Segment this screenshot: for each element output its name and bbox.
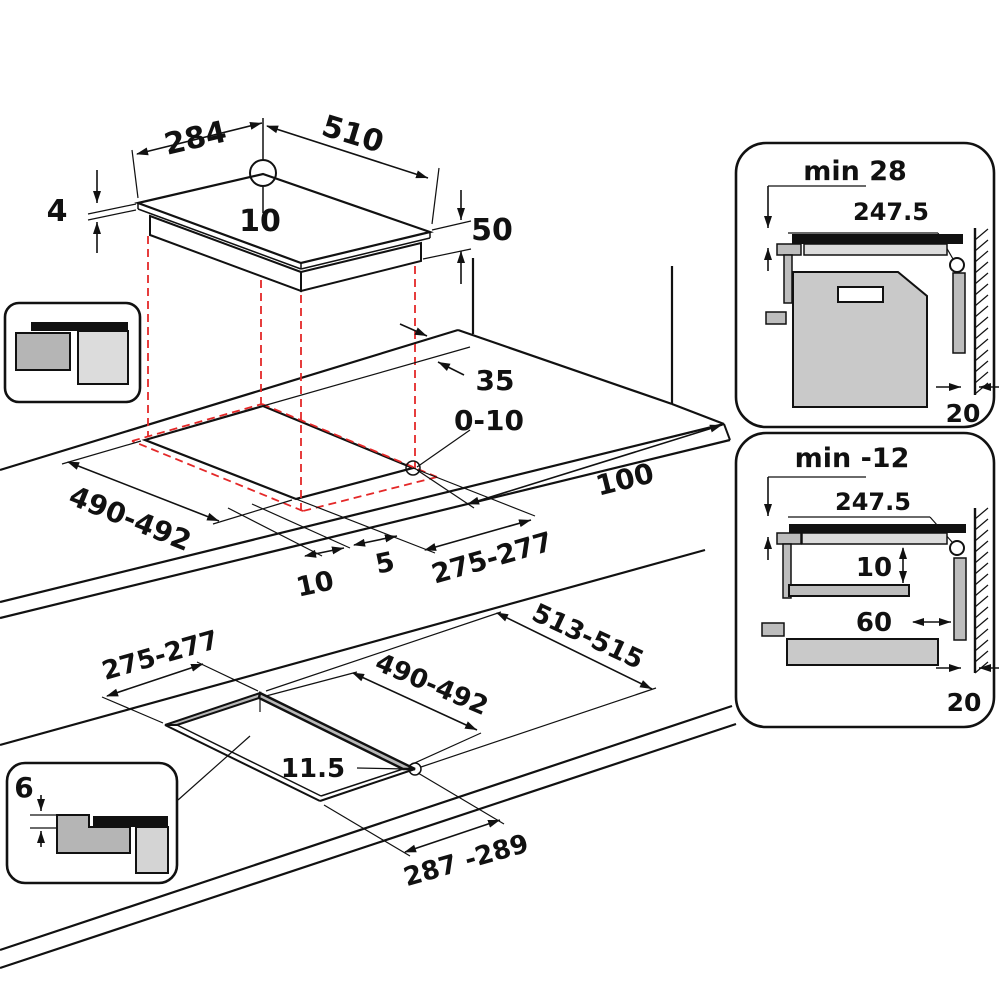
dim-35-arrow-2 (438, 362, 464, 375)
dim-label-glass-thickness: 4 (47, 194, 68, 229)
dim-label-glass-gap: 5 (373, 546, 398, 580)
ext-4-top (88, 204, 136, 214)
ext-287-right (418, 773, 504, 824)
dim-label-side-clearance: 100 (593, 456, 658, 502)
label-wall-gap-oven: 20 (946, 399, 981, 428)
surface-icon-hob-body (16, 333, 70, 370)
label-shelf-gap: 10 (856, 553, 892, 583)
shelf-wall-hatch (975, 508, 988, 673)
surface-icon-glass (31, 322, 128, 331)
ext-490L-right (408, 733, 481, 766)
shelf-bracket (777, 533, 801, 544)
label-shelf-setback: 60 (856, 608, 892, 638)
shelf-hob-body (802, 533, 947, 544)
ext-4-bottom (88, 210, 136, 220)
shelf-wall-spacer (954, 558, 966, 640)
flush-icon-counter-body (136, 827, 168, 873)
oven-hob-glass (792, 234, 963, 244)
label-wall-gap-shelf: 20 (947, 688, 982, 717)
oven-side-tab (766, 312, 786, 324)
oven-wall-spacer (953, 273, 965, 353)
shelf-clearance-panel: min -12 247.5 10 60 20 (736, 433, 999, 727)
shelf-board (789, 585, 909, 596)
dim-35-arrow-1 (400, 324, 427, 336)
oven-vent-slot (838, 287, 883, 302)
oven-bracket-strip (784, 255, 792, 303)
dim-label-cutout-depth: 490-492 (64, 479, 196, 558)
surface-cutout-outline (145, 406, 413, 499)
dim-10-arrow (305, 548, 344, 556)
label-min-clearance-oven: min 28 (803, 156, 907, 187)
flush-mount-icon: 6 (7, 736, 250, 883)
shelf-center-marker (950, 541, 964, 555)
oven-clearance-panel: min 28 247.5 20 (736, 143, 999, 428)
projection-lines (132, 236, 437, 511)
dim-label-edge-offset: 10 (294, 565, 337, 603)
ext-edge-3 (296, 499, 435, 553)
counter-end-cap (724, 424, 730, 440)
flush-icon-counter-top (93, 816, 168, 827)
oven-hob-body (804, 244, 947, 255)
hob-body-right-face (301, 243, 421, 291)
label-min-clearance-shelf: min -12 (795, 443, 910, 474)
dim-label-back-gap: 35 (476, 364, 515, 397)
counter-end-edge (672, 404, 724, 424)
hob-dimensions: 284 510 4 10 50 (47, 109, 513, 284)
flush-counter (0, 550, 736, 968)
surface-counter (0, 258, 730, 618)
ext-284-left (132, 150, 138, 198)
shelf-drawer (787, 639, 938, 665)
flush-rim-left (165, 693, 260, 725)
label-center-distance-shelf: 247.5 (835, 488, 911, 516)
ext-edge-1 (228, 508, 322, 556)
ext-510-right (432, 168, 439, 224)
oven-bracket (777, 244, 801, 255)
shelf-side-tab (762, 623, 784, 636)
ext-490-left (62, 441, 141, 464)
dim-label-cutout-width: 275-277 (428, 527, 556, 591)
ext-50-top (432, 221, 471, 230)
dim-label-outer-width: 287 -289 (400, 829, 532, 893)
projection-rect-front-left (132, 441, 303, 511)
surface-icon-counter (78, 331, 128, 384)
ext-35 (263, 347, 470, 406)
oven-center-marker (950, 258, 964, 272)
dim-5-arrow (354, 536, 397, 545)
diagram-canvas: 284 510 4 10 50 35 0-10 100 490-492 (0, 0, 1000, 1000)
dim-label-body-height: 50 (471, 213, 513, 248)
ext-287-left (324, 805, 410, 856)
dim-label-inner-depth: 490-492 (371, 648, 493, 722)
oven-wall-hatch (975, 229, 988, 394)
dim-label-corner-radius: 0-10 (454, 404, 524, 437)
dim-label-center-offset: 10 (239, 204, 281, 239)
flush-icon-leader (178, 736, 250, 800)
ext-50-bottom (423, 249, 471, 259)
ext-275L-left (102, 697, 163, 723)
dim-label-hob-depth: 510 (318, 109, 388, 161)
projection-rect-back-right (262, 404, 437, 477)
flush-cutout-dimensions: 275-277 513-515 490-492 11.5 287 -289 (99, 598, 656, 893)
dim-label-hob-width: 284 (161, 114, 230, 162)
label-center-distance-oven: 247.5 (853, 198, 929, 226)
projection-rect-front-right (303, 477, 437, 511)
hob-glass-top (138, 174, 430, 263)
installation-diagram: 284 510 4 10 50 35 0-10 100 490-492 (0, 0, 1000, 1000)
dim-label-recess-depth: 6 (14, 771, 33, 804)
shelf-hob-glass (789, 524, 966, 533)
surface-mount-icon (5, 303, 140, 402)
dim-label-rim-width: 11.5 (281, 754, 345, 784)
